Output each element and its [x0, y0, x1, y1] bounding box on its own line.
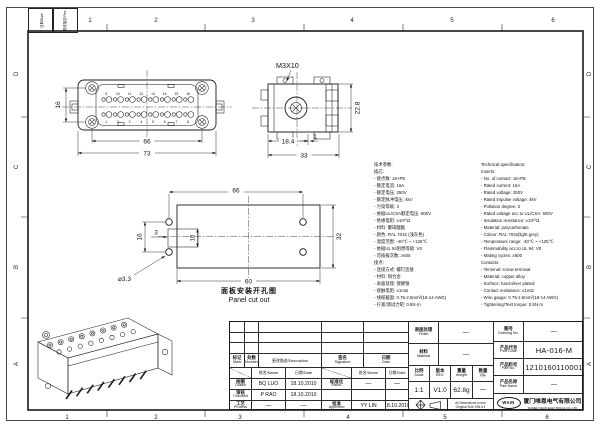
empty-cell: [352, 390, 386, 401]
spec-line: - 表面处理: 镀硬银: [374, 280, 478, 287]
panel-caption: 面板安装开孔图 Panel cut out: [180, 286, 318, 304]
zone-row-label: A: [587, 362, 593, 366]
projection-symbol-icon: [415, 400, 426, 410]
dim-side-b: 1: [313, 134, 317, 141]
pin-number: 4: [140, 120, 142, 124]
spec-line: - 额定电流: 16A: [374, 182, 478, 189]
spec-line: - 材料: 聚碳酸酯: [374, 224, 478, 231]
spec-line: 插芯:: [374, 168, 478, 175]
spec-line: - 线缆截面: 0.75-2.5mm²(18-14 AWG): [374, 294, 478, 301]
pin-number: 16: [186, 92, 190, 96]
spec-line: - Surface: hard-silver plated: [481, 280, 595, 287]
spec-line: - No. of contact: 16+PE: [481, 175, 595, 182]
pin-number: 2: [117, 120, 119, 124]
face-view-drawing: 910111213141516 12345678 16 66 73: [55, 70, 232, 157]
spec-line: - Rated current: 16A: [481, 182, 595, 189]
zone-col-label: 4: [350, 18, 354, 24]
weight-en: Weight: [456, 374, 467, 378]
scale-label: 比例 Scale: [409, 366, 430, 382]
number-en: Number: [245, 361, 258, 365]
revision-rows: [230, 322, 409, 354]
iso-pins: [66, 371, 146, 399]
rev-value: V1.0: [430, 382, 451, 399]
spec-line: - Contact resistance: ≤1mΩ: [481, 287, 595, 294]
approved-name: YY LIN: [352, 401, 386, 411]
spec-line: - Terminal: screw terminal: [481, 266, 595, 273]
material-en: Material: [417, 355, 430, 359]
date-en: Date: [382, 361, 390, 365]
finish-value: —: [439, 322, 494, 344]
part-name-value: —: [524, 376, 584, 394]
dim-panel-notch-height: 10: [191, 234, 197, 241]
spec-line: - 接触电阻: ≤1mΩ: [374, 287, 478, 294]
spec-line: - Tightening/Test torque: 0.5N·m: [481, 301, 595, 308]
finish-en: Finish: [419, 333, 429, 337]
weight-label: 重量 Weight: [451, 366, 473, 382]
pin-number: 7: [175, 120, 177, 124]
zone-row-label: D: [14, 71, 20, 76]
drawn-date: 18.10.2010: [286, 379, 322, 390]
dim-panel-left: 16: [137, 233, 144, 241]
qty-value: —: [473, 382, 494, 399]
side-view-drawing: M3X10 18.4 1 33 22.8: [252, 61, 362, 159]
zone-row-label: D: [587, 71, 593, 76]
dim-panel-bottom: 60: [245, 279, 253, 286]
diagonal-cell: [230, 368, 252, 379]
part-name-label: 产品名称 Part Name: [494, 376, 524, 394]
spec-line: - Material: polycarbonate: [481, 224, 595, 231]
note-size: Original Size DIN A 4: [456, 405, 486, 409]
spec-line: - Flammability acc.to UL 94: V0: [481, 245, 595, 252]
screw-callout: M3X10: [276, 61, 299, 70]
dim-panel-top: 66: [232, 187, 240, 194]
subheader-date2: 日期/Date: [386, 368, 409, 379]
scale-en: Scale: [414, 374, 423, 378]
description-label: 更改描述/Description: [272, 358, 308, 364]
spec-column-en: Technical specification:Inserts:- No. of…: [481, 161, 595, 308]
process-name: —: [252, 401, 286, 411]
spec-line: - 可插拔次数: ≥500: [374, 252, 478, 259]
spec-line: - 温度范围: -40℃ ~ +125℃: [374, 238, 478, 245]
empty-cell: [322, 390, 352, 401]
drawing-no-en: Drawing No.: [498, 332, 518, 336]
spec-line: - 依据UL 94阻燃等级: V0: [374, 245, 478, 252]
diagonal-cell: [322, 368, 352, 379]
dim-face-outer: 73: [143, 150, 151, 157]
material-value: —: [439, 344, 494, 366]
pin-number: 11: [128, 92, 132, 96]
dim-panel-hole: ⌀3.3: [118, 276, 131, 283]
dim-side-a: 18.4: [282, 138, 295, 145]
drawing-no-value: —: [524, 322, 584, 342]
zone-col-label: 5: [450, 18, 454, 24]
dim-side-d: 22.8: [355, 101, 362, 114]
revision-date-box: 日期/Date: [28, 8, 54, 33]
spec-line: Contacts:: [481, 259, 595, 266]
rev-en: REV.: [436, 374, 444, 378]
pin-number: 8: [187, 120, 189, 124]
contact-row-bottom: 12345678: [102, 112, 194, 124]
signature-en: Signature: [335, 361, 351, 365]
row-label-process: 工艺 Process: [230, 401, 252, 411]
company-block: WAIN 厦门唯恩电气有限公司 XIAMEN WAIN ELECTRICAL C…: [494, 394, 584, 411]
part-name-en: Part Name: [500, 385, 518, 389]
stand-en: Stand.: [331, 384, 342, 388]
projection-symbols: [409, 399, 448, 411]
spec-line: - Pollution degree: 3: [481, 203, 595, 210]
name-label: 姓名/Name: [259, 370, 278, 376]
zone-row-label: A: [14, 362, 20, 366]
empty-cell: [386, 390, 409, 401]
spec-line: Inserts:: [481, 168, 595, 175]
spec-line: - 额定电压: 250V: [374, 189, 478, 196]
cone-symbol-icon: [429, 401, 442, 410]
qty-en: Qty.: [480, 374, 487, 378]
spec-line: - Temperature range: -40℃ ~ +125℃: [481, 238, 595, 245]
drawn-name: BQ LUO: [252, 379, 286, 390]
spec-line: - 连接方式: 螺钉连接: [374, 266, 478, 273]
subheader-date: 日期/Date: [286, 368, 322, 379]
mark-en: Mark: [233, 361, 241, 365]
spec-line: - 额定脉冲电压: 4kV: [374, 196, 478, 203]
pin-number: 13: [151, 92, 155, 96]
drawing-sheet: 1 2 3 4 5 6 1 2 3 4 5 6 D C B A D C B A: [0, 0, 600, 426]
approved-en: Approved: [329, 406, 345, 410]
date-label: 日期/Date: [388, 370, 405, 376]
zone-col-label: 1: [88, 18, 92, 24]
wain-logo: WAIN: [497, 397, 521, 409]
pin-number: 9: [105, 92, 107, 96]
company-name: 厦门唯恩电气有限公司 XIAMEN WAIN ELECTRICAL CO.,LT…: [524, 396, 582, 410]
date-label: 日期/Date: [295, 370, 312, 376]
row-label-drawn: 绘图 Drawn: [230, 379, 252, 390]
logo-text: WAIN: [502, 400, 514, 405]
finish-label: 表面处理 Finish: [409, 322, 439, 344]
zone-col-label: 3: [251, 18, 255, 24]
dim-panel-right: 32: [336, 233, 343, 241]
panel-cutout-drawing: 66 16 3 10 32 60 ⌀3.3: [118, 187, 343, 286]
process-date: —: [286, 401, 322, 411]
company-name-zh: 厦门唯恩电气有限公司: [524, 396, 582, 405]
dim-panel-notch-offset: 3: [154, 231, 158, 237]
col-header-description: 更改描述/Description: [259, 354, 322, 368]
dim-face-inner: 66: [143, 138, 151, 145]
name-label: 姓名/Name: [359, 370, 378, 376]
checked-en: Checked: [233, 395, 248, 399]
iso-terminal-screws: [47, 322, 135, 354]
pin-number: 14: [163, 92, 167, 96]
spec-line: - Rated impulse voltage: 4kV: [481, 196, 595, 203]
checked-date: 18.10.2010: [286, 390, 322, 401]
col-header-mark: 标记 Mark: [230, 354, 245, 368]
dim-face-height: 16: [55, 101, 62, 109]
isometric-view-drawing: [38, 318, 172, 399]
stand-name: —: [352, 379, 386, 390]
approved-date: 18.10.2010: [386, 401, 409, 411]
part-code-label: 产品代号 Part Code: [494, 342, 524, 359]
spec-line: - 颜色: RAL 7032 (浅灰色): [374, 231, 478, 238]
panel-caption-en: Panel cut out: [180, 297, 318, 304]
checked-name: P RAO: [252, 390, 286, 401]
part-code-value: HA-016-M: [524, 342, 584, 359]
subheader-name2: 姓名/Name: [352, 368, 386, 379]
row-label-approved: 批准 Approved: [322, 401, 352, 411]
dimension-note: All Dimensions in mm Original Size DIN A…: [448, 399, 494, 411]
spec-line: 技术参数:: [374, 161, 478, 168]
spec-line: - Rated voltage: 250V: [481, 189, 595, 196]
zone-col-label: 6: [551, 18, 555, 24]
zone-row-label: C: [14, 164, 20, 169]
zone-row-label: B: [14, 265, 20, 269]
drawing-no-label: 图号 Drawing No.: [494, 322, 524, 342]
spec-line: - Rated voltage acc.to UL/CSA: 600V: [481, 210, 595, 217]
title-block: 标记 Mark 处数 Number 更改描述/Description 签名 Si…: [229, 321, 583, 410]
revision-desc-label: 更改描述 Rev.: [62, 10, 67, 31]
rev-label: 版本 REV.: [430, 366, 451, 382]
spec-line: - Wire gauge: 0.75-2.5mm²(18-14 AWG): [481, 294, 595, 301]
row-label-standardized: 标准化 Stand.: [322, 379, 352, 390]
weight-value: 62.8g: [451, 382, 473, 399]
col-header-number: 处数 Number: [245, 354, 259, 368]
spec-line: - 依据UL/CSA额定电压: 600V: [374, 210, 478, 217]
spec-line: Technical specification:: [481, 161, 595, 168]
col-header-signature: 签名 Signature: [322, 354, 364, 368]
part-no-en: Part No.: [502, 367, 516, 371]
spec-line: - Colour: RAL 7032(light grey): [481, 231, 595, 238]
spec-line: - 拧紧/测试力矩: 0.5N·m: [374, 301, 478, 308]
pin-number: 5: [152, 120, 154, 124]
panel-caption-zh: 面板安装开孔图: [180, 286, 318, 296]
row-label-checked: 审核 Checked: [230, 390, 252, 401]
drawn-en: Drawn: [235, 384, 246, 388]
qty-label: 数量 Qty.: [473, 366, 494, 382]
pin-number: 12: [139, 92, 143, 96]
part-no-label: 产品料号 Part No.: [494, 359, 524, 376]
stand-date: —: [386, 379, 409, 390]
contact-row-top: 910111213141516: [102, 92, 194, 103]
revision-desc-box: 更改描述 Rev.: [52, 8, 78, 33]
pin-number: 1: [105, 120, 107, 124]
spec-line: - 接点数: 16+PE: [374, 175, 478, 182]
spec-line: - 污染等级: 3: [374, 203, 478, 210]
process-en: Process: [234, 406, 247, 410]
spec-line: 接点:: [374, 259, 478, 266]
spec-line: - 绝缘电阻: ≥10¹⁰Ω: [374, 217, 478, 224]
subheader-name: 姓名/Name: [252, 368, 286, 379]
spec-line: - 材料: 铜合金: [374, 273, 478, 280]
spec-line: - Insulation resistance: ≥10¹⁰Ω: [481, 217, 595, 224]
material-label: 材料 Material: [409, 344, 439, 366]
col-header-date: 日期 Date: [364, 354, 409, 368]
pin-number: 15: [175, 92, 179, 96]
pin-number: 10: [116, 92, 120, 96]
revision-date-label: 日期/Date: [38, 13, 43, 28]
company-name-en: XIAMEN WAIN ELECTRICAL CO.,LTD: [524, 406, 582, 410]
spec-line: - Material: copper alloy: [481, 273, 595, 280]
zone-col-label: 2: [154, 18, 158, 24]
scale-value: 1:1: [409, 382, 430, 399]
pin-number: 3: [129, 120, 131, 124]
part-code-en: Part Code: [500, 350, 517, 354]
spec-column-zh: 技术参数:插芯:- 接点数: 16+PE- 额定电流: 16A- 额定电压: 2…: [374, 161, 478, 308]
part-no-value: 1210160110001: [524, 359, 584, 376]
dim-side-c: 33: [300, 152, 308, 159]
pin-number: 6: [164, 120, 166, 124]
spec-line: - Mating cycles: ≥500: [481, 252, 595, 259]
